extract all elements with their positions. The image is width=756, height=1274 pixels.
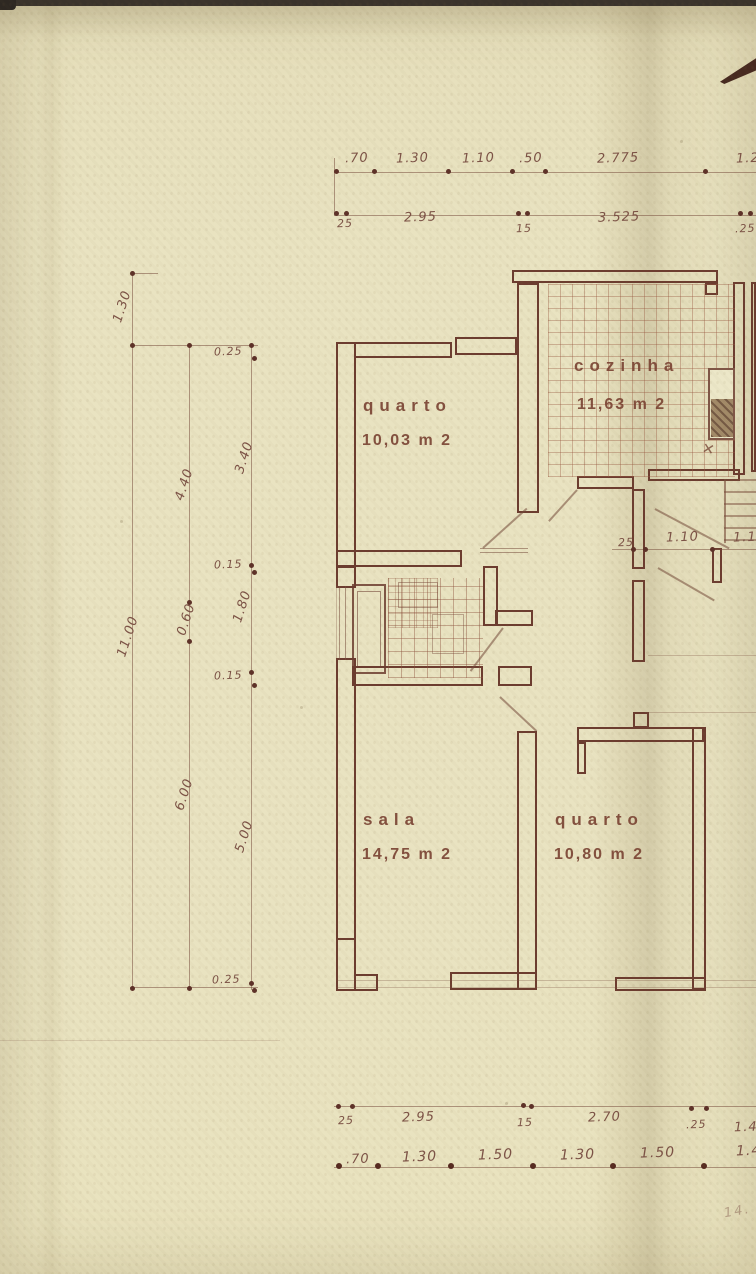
wall-segment bbox=[751, 282, 756, 472]
toilet bbox=[432, 614, 464, 654]
paper-speck bbox=[300, 706, 303, 709]
dim-label: 11.00 bbox=[114, 614, 141, 659]
paper-fold-crease bbox=[592, 0, 712, 1274]
dimension-line bbox=[334, 215, 756, 216]
dimension-line bbox=[189, 345, 190, 988]
dimension-dot bbox=[610, 1163, 616, 1169]
dim-label: 1.13 bbox=[733, 529, 756, 545]
dimension-dot bbox=[252, 570, 257, 575]
door-threshold-line bbox=[480, 548, 528, 549]
door-threshold-line bbox=[480, 552, 528, 553]
wall-segment bbox=[577, 727, 704, 742]
dimension-dot bbox=[448, 1163, 454, 1169]
dimension-dot bbox=[249, 670, 254, 675]
dimension-dot bbox=[748, 211, 753, 216]
dim-label: 3.525 bbox=[598, 209, 641, 225]
room-label-quarto-2: quarto bbox=[555, 810, 644, 830]
bathroom-sink bbox=[398, 582, 438, 608]
room-label-quarto-1: quarto bbox=[363, 396, 452, 416]
dimension-dot bbox=[249, 343, 254, 348]
dimension-dot bbox=[187, 343, 192, 348]
dimension-dot bbox=[130, 986, 135, 991]
dim-label: 1.25 bbox=[736, 150, 756, 166]
paper-tone-overlay bbox=[0, 6, 756, 40]
dim-label: 2.95 bbox=[404, 209, 437, 225]
dimension-dot bbox=[350, 1104, 355, 1109]
dimension-dot bbox=[703, 169, 708, 174]
dim-label: 15 bbox=[517, 1116, 533, 1130]
dimension-dot bbox=[336, 1163, 342, 1169]
dim-label: 0.15 bbox=[214, 558, 243, 572]
dim-label: 1.4 bbox=[734, 1120, 756, 1136]
room-area-sala: 14,75 m 2 bbox=[362, 846, 452, 864]
dimension-line bbox=[130, 987, 258, 988]
construction-line bbox=[0, 1040, 280, 1041]
dim-label: 0.15 bbox=[214, 669, 243, 683]
wall-segment bbox=[632, 489, 645, 569]
wall-segment bbox=[336, 550, 462, 567]
dim-label: 0.25 bbox=[212, 973, 241, 987]
floorplan-scan-page: ✕ bbox=[0, 0, 756, 1274]
dimension-dot bbox=[525, 211, 530, 216]
dim-label: 1.30 bbox=[560, 1146, 596, 1163]
wall-segment bbox=[517, 283, 539, 513]
dim-label: 0.25 bbox=[214, 345, 243, 359]
dim-label: 1.30 bbox=[402, 1148, 438, 1165]
dim-label: 25 bbox=[338, 1114, 354, 1128]
dimension-line bbox=[132, 273, 158, 274]
dim-label: 2.775 bbox=[597, 150, 640, 166]
dim-label: 1.10 bbox=[462, 150, 495, 166]
dim-label: 0.60 bbox=[174, 602, 198, 638]
window-sill-line bbox=[336, 987, 756, 988]
dimension-dot bbox=[375, 1163, 381, 1169]
dimension-dot bbox=[252, 683, 257, 688]
wall-segment bbox=[336, 342, 356, 568]
door-swing-line bbox=[499, 696, 537, 732]
wall-segment bbox=[336, 938, 356, 991]
dimension-dot bbox=[252, 988, 257, 993]
dim-label: 25 bbox=[618, 536, 634, 550]
paper-speck bbox=[120, 520, 123, 523]
wall-segment bbox=[577, 742, 586, 774]
window-line bbox=[339, 586, 340, 660]
window-line bbox=[336, 586, 337, 660]
dim-label: .25 bbox=[686, 1118, 707, 1132]
dimension-dot bbox=[543, 169, 548, 174]
dimension-dot bbox=[187, 639, 192, 644]
kitchen-sink-hatch bbox=[711, 399, 733, 437]
room-area-quarto-2: 10,80 m 2 bbox=[554, 846, 644, 864]
dim-label: .25 bbox=[735, 222, 756, 236]
dim-label: 1.4 bbox=[736, 1143, 756, 1160]
construction-line bbox=[645, 712, 756, 713]
wall-segment bbox=[512, 270, 718, 283]
bathtub-inner bbox=[357, 591, 381, 667]
door-swing-line bbox=[548, 489, 578, 522]
wall-segment bbox=[455, 337, 517, 355]
wall-segment bbox=[692, 727, 706, 990]
dimension-dot bbox=[334, 211, 339, 216]
room-label-cozinha: cozinha bbox=[574, 356, 679, 376]
wall-segment bbox=[354, 974, 378, 991]
dim-label: .50 bbox=[519, 151, 543, 167]
room-label-sala: sala bbox=[363, 810, 420, 830]
door-swing-line bbox=[482, 508, 527, 549]
dimension-dot bbox=[187, 986, 192, 991]
paper-speck bbox=[505, 1102, 508, 1105]
dimension-dot bbox=[130, 271, 135, 276]
scan-top-edge bbox=[0, 0, 756, 6]
dimension-dot bbox=[130, 343, 135, 348]
dim-label: 1.10 bbox=[666, 529, 699, 545]
construction-line bbox=[648, 655, 756, 656]
dimension-dot bbox=[701, 1163, 707, 1169]
dim-label: 15 bbox=[516, 222, 532, 236]
room-area-cozinha: 11,63 m 2 bbox=[577, 396, 666, 414]
dim-label: 5.00 bbox=[232, 819, 256, 855]
window-line bbox=[345, 586, 346, 660]
wall-segment bbox=[498, 666, 532, 686]
room-area-quarto-1: 10,03 m 2 bbox=[362, 432, 452, 450]
wall-segment bbox=[495, 610, 533, 626]
dim-label: 3.40 bbox=[232, 440, 256, 476]
wall-segment bbox=[517, 731, 537, 990]
dimension-line bbox=[334, 1167, 756, 1168]
dim-label: 1.30 bbox=[396, 150, 429, 166]
wall-segment bbox=[632, 580, 645, 662]
dimension-dot bbox=[446, 169, 451, 174]
dim-label: 2.70 bbox=[588, 1109, 621, 1125]
door-swing-line bbox=[658, 567, 715, 601]
window-sill-line bbox=[336, 980, 756, 981]
dimension-dot bbox=[344, 211, 349, 216]
dimension-dot bbox=[530, 1163, 536, 1169]
wall-segment bbox=[577, 476, 634, 489]
dimension-dot bbox=[521, 1103, 526, 1108]
dim-label: .70 bbox=[345, 151, 369, 167]
dimension-dot bbox=[336, 1104, 341, 1109]
dim-label: 1.50 bbox=[640, 1144, 676, 1161]
dimension-dot bbox=[704, 1106, 709, 1111]
wall-segment bbox=[712, 548, 722, 583]
dimension-dot bbox=[738, 211, 743, 216]
dim-label: 2.95 bbox=[402, 1109, 435, 1125]
dimension-dot bbox=[689, 1106, 694, 1111]
dimension-dot bbox=[510, 169, 515, 174]
dimension-dot bbox=[529, 1104, 534, 1109]
dimension-dot bbox=[249, 563, 254, 568]
dim-label: 4.40 bbox=[172, 467, 196, 503]
dim-label: 1.50 bbox=[478, 1146, 514, 1163]
scan-corner-blob bbox=[0, 0, 16, 10]
dimension-dot bbox=[516, 211, 521, 216]
dimension-dot bbox=[334, 169, 339, 174]
corner-mark bbox=[720, 56, 756, 84]
dimension-line bbox=[334, 158, 335, 215]
dimension-dot bbox=[710, 547, 715, 552]
dim-label: 6.00 bbox=[172, 777, 196, 813]
wall-segment bbox=[354, 342, 452, 358]
dimension-dot bbox=[372, 169, 377, 174]
wall-segment bbox=[336, 658, 356, 940]
dimension-dot bbox=[252, 356, 257, 361]
dimension-dot bbox=[643, 547, 648, 552]
dim-label: .70 bbox=[346, 1152, 370, 1168]
wall-segment bbox=[633, 712, 649, 728]
paper-fold-crease bbox=[38, 0, 64, 1274]
corner-note: 14. bbox=[723, 1202, 752, 1221]
dim-label: 25 bbox=[337, 217, 353, 231]
paper-speck bbox=[680, 140, 683, 143]
dimension-dot bbox=[249, 981, 254, 986]
